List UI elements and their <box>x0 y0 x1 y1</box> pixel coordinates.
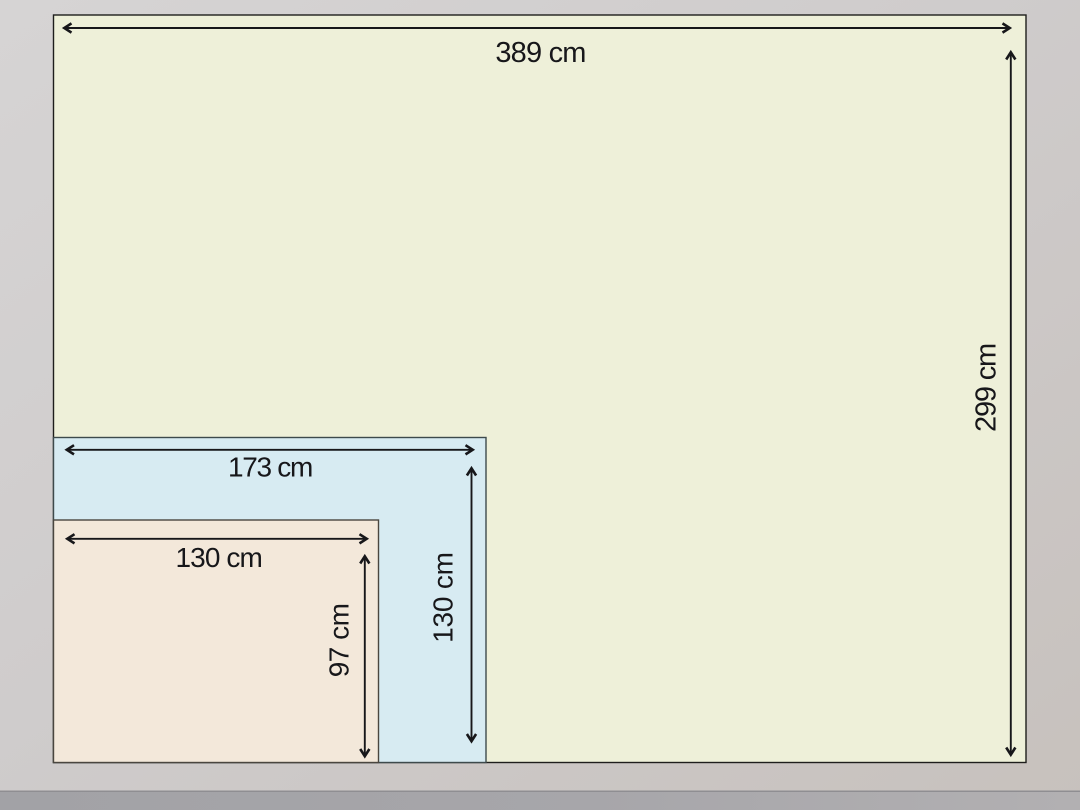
svg-text:130 cm: 130 cm <box>175 542 261 573</box>
svg-text:130 cm: 130 cm <box>428 552 459 643</box>
svg-text:173 cm: 173 cm <box>228 452 312 483</box>
svg-text:97 cm: 97 cm <box>323 604 354 678</box>
svg-text:299 cm: 299 cm <box>971 344 1003 432</box>
svg-text:389 cm: 389 cm <box>495 37 585 69</box>
